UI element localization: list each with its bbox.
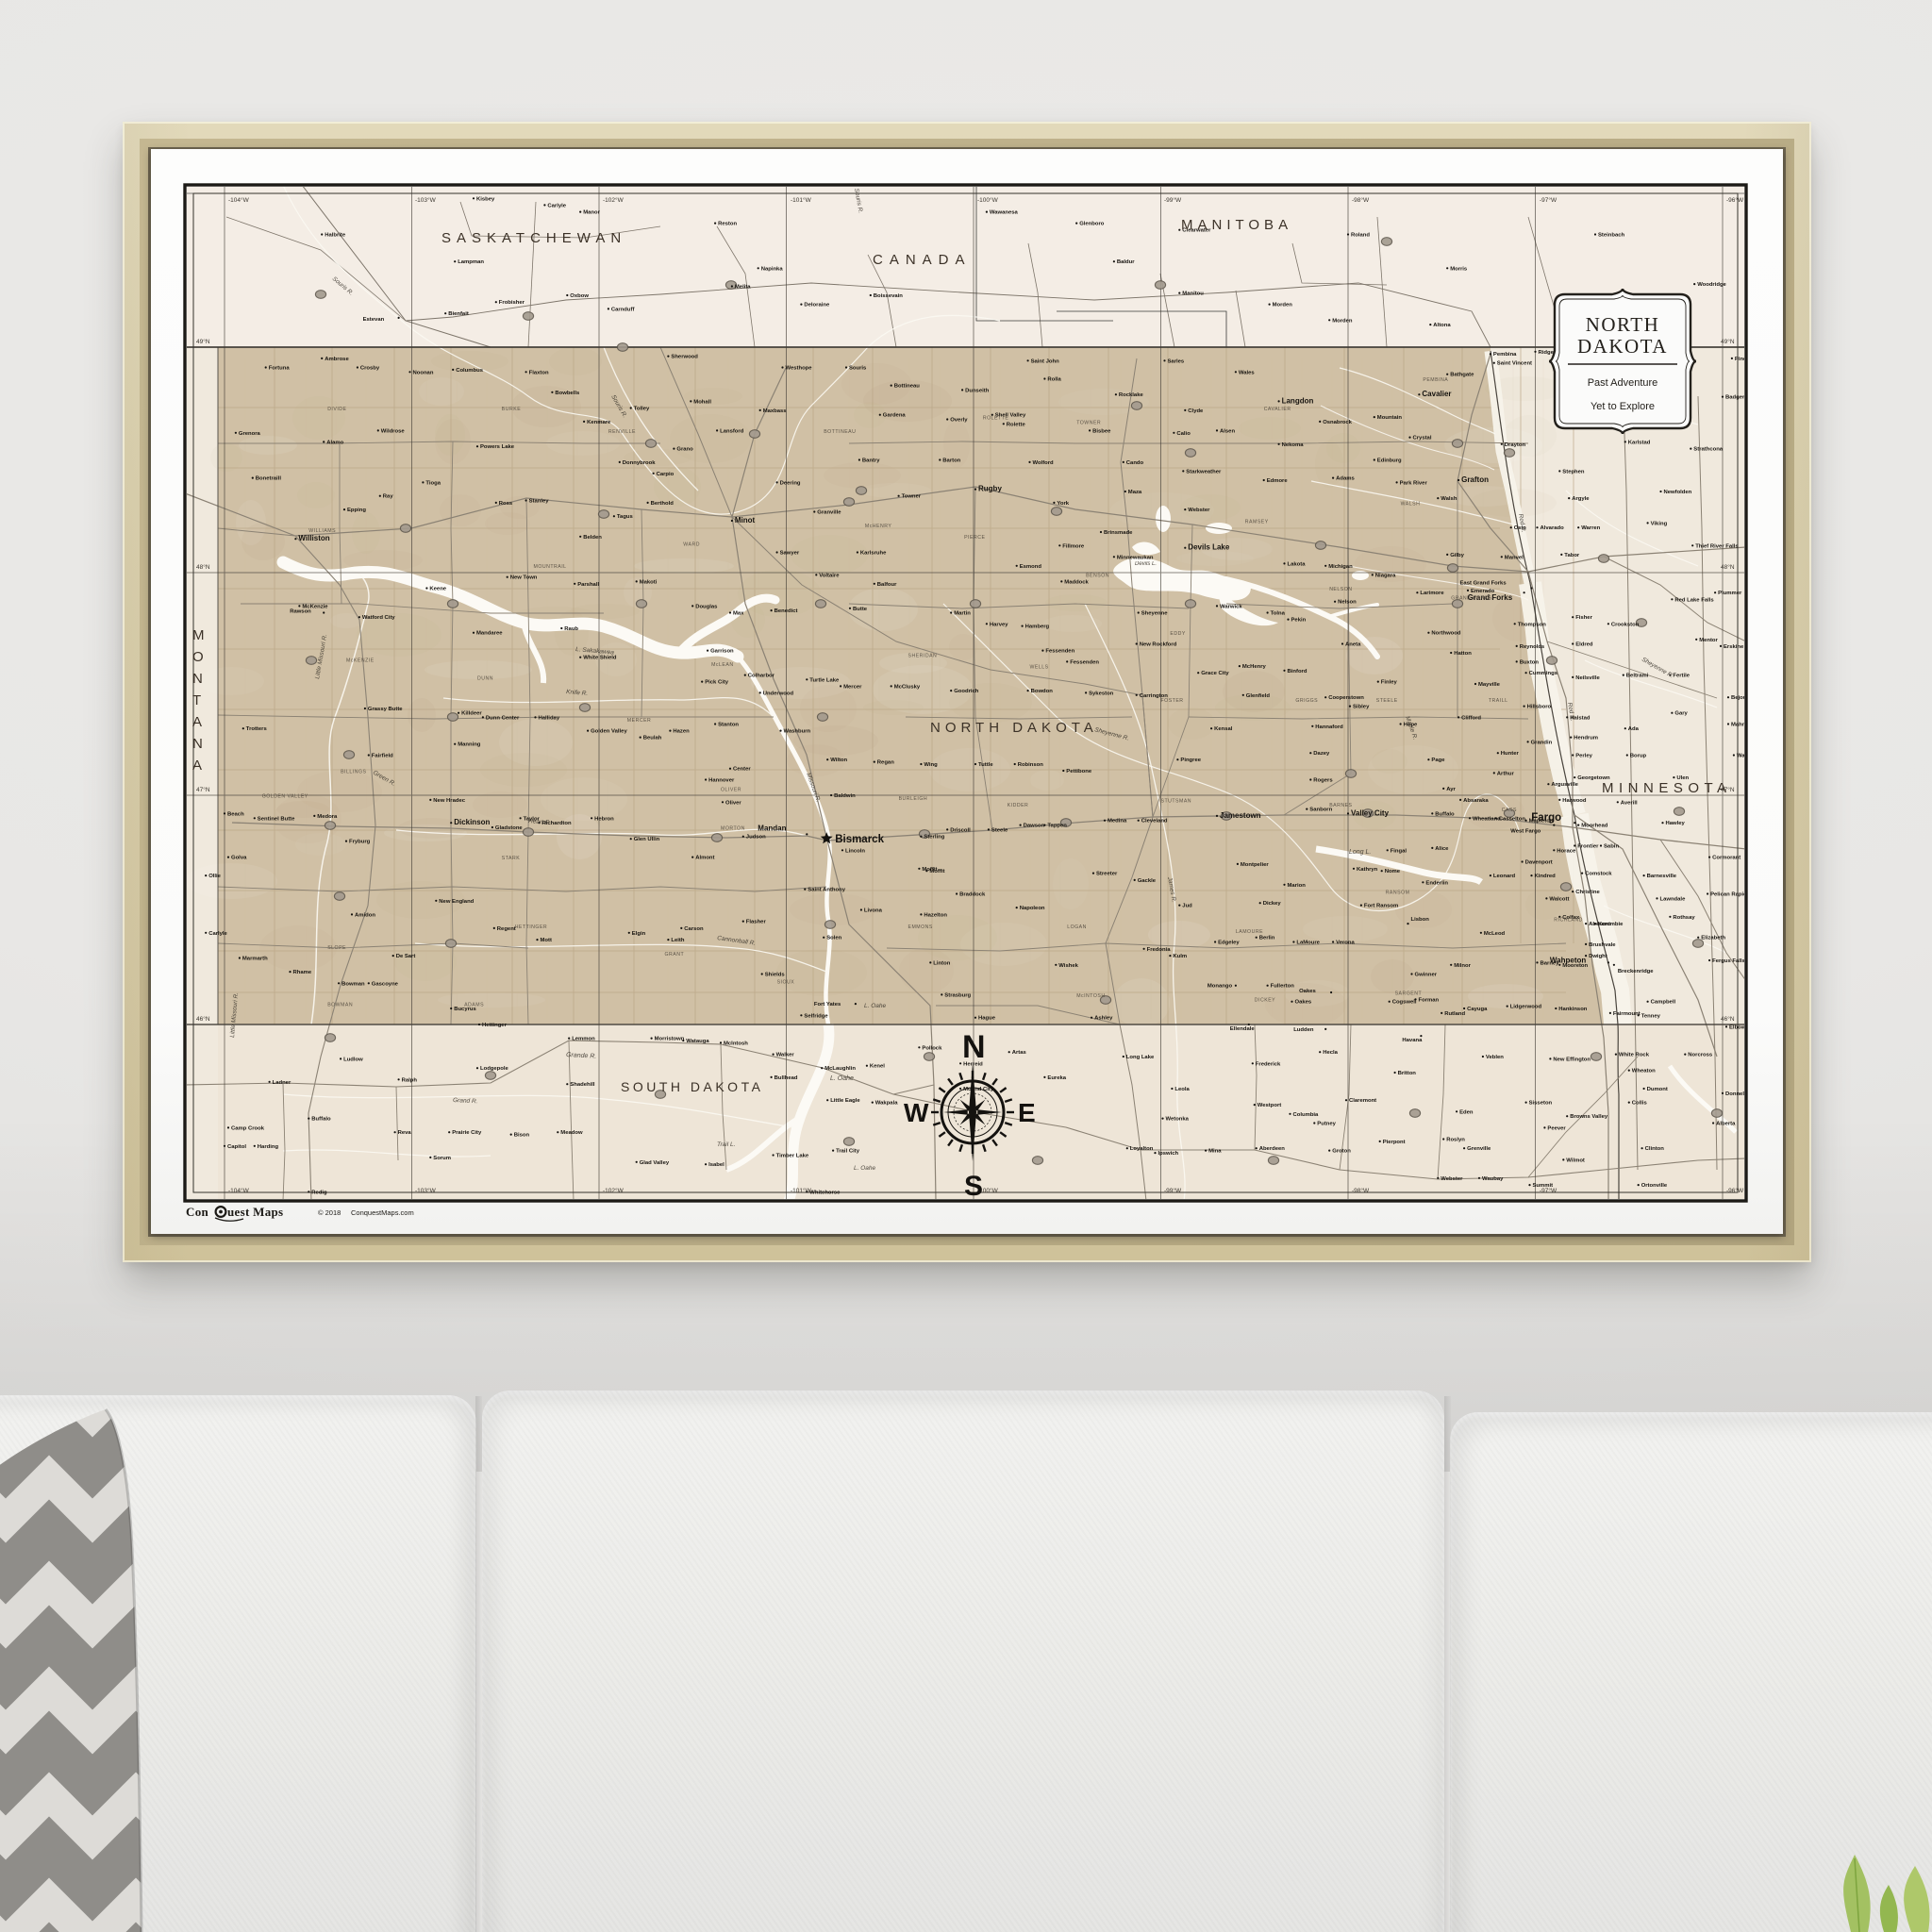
svg-text:Ada: Ada: [1628, 726, 1640, 732]
svg-text:Maxbass: Maxbass: [763, 408, 788, 414]
svg-text:Borup: Borup: [1630, 754, 1647, 759]
svg-text:Grand R.: Grand R.: [453, 1097, 478, 1105]
svg-text:Walker: Walker: [776, 1053, 795, 1058]
svg-text:Altona: Altona: [1433, 323, 1451, 328]
svg-text:Sheyenne: Sheyenne: [1141, 611, 1169, 617]
svg-text:Bowdon: Bowdon: [1031, 689, 1054, 694]
svg-text:Little Eagle: Little Eagle: [830, 1098, 860, 1104]
svg-text:Walsh: Walsh: [1441, 496, 1457, 502]
svg-text:Oxbow: Oxbow: [570, 293, 589, 299]
svg-text:Crookston: Crookston: [1611, 622, 1640, 627]
svg-text:Cooperstown: Cooperstown: [1328, 695, 1364, 701]
svg-text:WARD: WARD: [683, 541, 700, 547]
svg-text:Bejou: Bejou: [1731, 695, 1747, 701]
svg-text:Balfour: Balfour: [877, 582, 897, 588]
svg-text:McIntosh: McIntosh: [724, 1041, 748, 1046]
svg-text:Martin: Martin: [954, 611, 971, 617]
svg-text:Saint Vincent: Saint Vincent: [1497, 361, 1532, 367]
svg-text:Warwick: Warwick: [1220, 604, 1242, 609]
svg-text:Donnybrook: Donnybrook: [623, 460, 656, 466]
svg-text:LAMOURE: LAMOURE: [1236, 929, 1263, 935]
svg-text:Manor: Manor: [583, 210, 600, 216]
svg-text:Arthur: Arthur: [1497, 771, 1515, 776]
svg-text:Wing: Wing: [924, 762, 938, 768]
svg-text:Perley: Perley: [1575, 754, 1592, 759]
svg-text:Valley City: Valley City: [1351, 808, 1390, 817]
svg-text:Souris: Souris: [849, 366, 867, 372]
svg-text:Judson: Judson: [746, 835, 766, 841]
svg-text:Page: Page: [1431, 758, 1445, 763]
svg-text:Ipswich: Ipswich: [1158, 1151, 1179, 1157]
svg-text:BENSON: BENSON: [1086, 574, 1109, 579]
svg-text:Newfolden: Newfolden: [1664, 490, 1692, 495]
svg-text:Horace: Horace: [1557, 848, 1576, 854]
svg-text:Ralph: Ralph: [402, 1077, 418, 1083]
svg-text:Selfridge: Selfridge: [804, 1013, 828, 1019]
svg-text:ConquestMaps.com: ConquestMaps.com: [351, 1208, 414, 1217]
svg-text:Sawyer: Sawyer: [780, 551, 800, 557]
svg-text:M: M: [192, 627, 205, 643]
svg-text:Niagara: Niagara: [1375, 573, 1396, 578]
svg-text:McHENRY: McHENRY: [865, 524, 892, 529]
svg-text:Clifford: Clifford: [1461, 715, 1481, 721]
svg-text:Sentinel Butte: Sentinel Butte: [258, 816, 295, 822]
svg-text:Tolley: Tolley: [634, 407, 650, 412]
svg-text:Redig: Redig: [311, 1190, 327, 1195]
svg-text:RICHLAND: RICHLAND: [1554, 918, 1583, 924]
svg-text:-103°W: -103°W: [415, 1187, 437, 1194]
svg-text:Kulm: Kulm: [1173, 954, 1187, 959]
svg-text:Ollie: Ollie: [208, 874, 221, 879]
svg-text:Lincoln: Lincoln: [845, 848, 865, 854]
svg-text:Oakes: Oakes: [1295, 1000, 1312, 1006]
svg-text:Ortonville: Ortonville: [1641, 1183, 1668, 1189]
svg-text:RENVILLE: RENVILLE: [608, 429, 636, 435]
svg-text:New England: New England: [439, 899, 474, 905]
svg-text:Oakes: Oakes: [1299, 989, 1316, 994]
svg-text:Whitehorse: Whitehorse: [809, 1190, 841, 1195]
svg-text:Braddock: Braddock: [959, 892, 986, 898]
svg-text:Adams: Adams: [1336, 476, 1355, 482]
svg-text:Loyalton: Loyalton: [1130, 1146, 1154, 1152]
svg-text:Reva: Reva: [398, 1130, 412, 1136]
svg-text:McLEAN: McLEAN: [711, 662, 733, 668]
svg-text:Tagus: Tagus: [617, 514, 634, 520]
svg-text:Marion: Marion: [1288, 883, 1307, 889]
svg-text:EDDY: EDDY: [1170, 631, 1185, 637]
svg-text:Parshall: Parshall: [577, 582, 599, 588]
svg-text:Lodgepole: Lodgepole: [480, 1066, 509, 1072]
svg-text:Hankinson: Hankinson: [1558, 1007, 1588, 1012]
svg-text:Wilmot: Wilmot: [1566, 1158, 1585, 1163]
svg-text:Rhame: Rhame: [293, 970, 312, 975]
svg-text:L. Oahe: L. Oahe: [830, 1075, 854, 1082]
svg-text:O: O: [192, 649, 204, 665]
svg-text:Harvey: Harvey: [990, 622, 1008, 627]
svg-text:Strathcona: Strathcona: [1693, 447, 1723, 453]
svg-text:Bisbee: Bisbee: [1092, 428, 1111, 434]
svg-text:Livona: Livona: [864, 908, 883, 914]
svg-text:Center: Center: [733, 767, 751, 773]
svg-text:-99°W: -99°W: [1164, 196, 1182, 204]
svg-text:Hamberg: Hamberg: [1025, 625, 1050, 630]
svg-text:Tappen: Tappen: [1047, 824, 1067, 829]
svg-text:Wheaton: Wheaton: [1632, 1069, 1656, 1074]
svg-text:Wilton: Wilton: [830, 758, 847, 763]
svg-text:46°N: 46°N: [196, 1015, 210, 1023]
svg-text:RANSOM: RANSOM: [1386, 891, 1410, 896]
svg-text:Lansford: Lansford: [720, 428, 744, 434]
svg-text:BOTTINEAU: BOTTINEAU: [824, 429, 856, 435]
svg-text:Strasburg: Strasburg: [944, 992, 971, 998]
svg-text:-102°W: -102°W: [603, 1187, 625, 1194]
svg-text:Eden: Eden: [1459, 1109, 1474, 1115]
svg-text:N: N: [962, 1029, 986, 1065]
svg-text:Christine: Christine: [1575, 890, 1600, 895]
svg-text:McKENZIE: McKENZIE: [346, 658, 375, 663]
svg-text:Wheatland: Wheatland: [1473, 816, 1501, 822]
svg-text:TRAILL: TRAILL: [1489, 698, 1508, 704]
svg-text:Halbrite: Halbrite: [325, 233, 346, 239]
svg-text:Steele: Steele: [991, 827, 1008, 833]
svg-text:Lemmon: Lemmon: [572, 1037, 595, 1042]
svg-text:Norcross: Norcross: [1688, 1053, 1713, 1058]
svg-text:Butte: Butte: [853, 607, 868, 612]
svg-text:© 2018: © 2018: [318, 1208, 341, 1217]
svg-text:Carpio: Carpio: [657, 472, 675, 477]
svg-text:N: N: [192, 671, 203, 687]
svg-text:Starkweather: Starkweather: [1186, 469, 1222, 475]
svg-text:Stanley: Stanley: [529, 499, 550, 505]
svg-text:Campbell: Campbell: [1651, 1000, 1676, 1006]
svg-text:Kindred: Kindred: [1535, 874, 1557, 879]
svg-text:Montpelier: Montpelier: [1241, 862, 1269, 868]
svg-text:New Rockford: New Rockford: [1140, 642, 1177, 648]
svg-text:Wales: Wales: [1239, 370, 1256, 375]
svg-text:HETTINGER: HETTINGER: [515, 924, 547, 930]
svg-text:Hendrum: Hendrum: [1574, 736, 1598, 741]
svg-text:Kenmare: Kenmare: [587, 420, 611, 425]
svg-text:Frederick: Frederick: [1256, 1061, 1281, 1067]
svg-text:Trail City: Trail City: [836, 1149, 860, 1155]
svg-text:Bantry: Bantry: [862, 458, 880, 464]
svg-text:Tabor: Tabor: [1564, 553, 1580, 558]
svg-text:NORTH DAKOTA: NORTH DAKOTA: [930, 720, 1098, 736]
svg-text:48°N: 48°N: [196, 563, 210, 571]
svg-text:Sykeston: Sykeston: [1089, 691, 1114, 696]
svg-text:McKenzie: McKenzie: [302, 604, 328, 609]
svg-text:Flaxton: Flaxton: [529, 370, 549, 375]
svg-text:Camp Crook: Camp Crook: [231, 1125, 265, 1131]
svg-text:Grassy Butte: Grassy Butte: [368, 707, 403, 712]
svg-text:MINNESOTA: MINNESOTA: [1602, 780, 1732, 796]
svg-text:Napoleon: Napoleon: [1020, 906, 1045, 911]
svg-text:Alberta: Alberta: [1716, 1122, 1736, 1127]
svg-text:Averill: Averill: [1621, 800, 1638, 806]
svg-text:Erskine: Erskine: [1724, 644, 1744, 650]
svg-text:Edmore: Edmore: [1267, 478, 1289, 484]
svg-text:DAKOTA: DAKOTA: [1577, 335, 1668, 358]
svg-text:Raub: Raub: [564, 626, 578, 632]
svg-text:Fortuna: Fortuna: [269, 366, 291, 372]
svg-text:Mercer: Mercer: [843, 684, 862, 690]
svg-text:Calio: Calio: [1176, 431, 1191, 437]
svg-text:-104°W: -104°W: [228, 196, 250, 204]
svg-text:WALSH: WALSH: [1401, 501, 1421, 507]
svg-text:Edinburg: Edinburg: [1377, 458, 1402, 464]
svg-text:Manitou: Manitou: [1182, 291, 1204, 297]
svg-text:EMMONS: EMMONS: [908, 924, 933, 930]
svg-text:Red Lake Falls: Red Lake Falls: [1674, 597, 1714, 603]
svg-text:KIDDER: KIDDER: [1008, 803, 1029, 808]
svg-text:Hunter: Hunter: [1501, 751, 1520, 757]
svg-text:Brinsmade: Brinsmade: [1104, 530, 1133, 536]
svg-text:Wishek: Wishek: [1058, 963, 1078, 969]
svg-text:Gilby: Gilby: [1450, 553, 1464, 558]
svg-text:Solen: Solen: [826, 936, 841, 941]
svg-text:Colharbor: Colharbor: [748, 674, 775, 679]
svg-text:Deloraine: Deloraine: [804, 303, 830, 308]
svg-text:Park River: Park River: [1400, 480, 1428, 486]
svg-text:Glad Valley: Glad Valley: [640, 1160, 670, 1166]
svg-text:E: E: [1018, 1098, 1036, 1127]
svg-text:Hawley: Hawley: [1666, 821, 1686, 826]
svg-text:White Shield: White Shield: [583, 656, 617, 661]
svg-text:CASS: CASS: [1502, 808, 1517, 813]
svg-text:46°N: 46°N: [1721, 1015, 1735, 1023]
svg-text:RAMSEY: RAMSEY: [1245, 519, 1269, 525]
svg-text:Dumont: Dumont: [1647, 1087, 1668, 1092]
svg-text:SASKATCHEWAN: SASKATCHEWAN: [441, 230, 626, 246]
svg-text:Douglas: Douglas: [695, 604, 718, 609]
svg-text:WELLS: WELLS: [1030, 665, 1049, 671]
svg-text:CANADA: CANADA: [873, 252, 972, 268]
svg-text:McLeod: McLeod: [1484, 931, 1506, 937]
svg-text:East Grand Forks: East Grand Forks: [1460, 581, 1507, 587]
svg-text:Harwood: Harwood: [1562, 798, 1587, 804]
svg-text:Eldred: Eldred: [1575, 642, 1593, 648]
svg-text:SOUTH DAKOTA: SOUTH DAKOTA: [621, 1079, 763, 1094]
svg-text:Golden Valley: Golden Valley: [591, 729, 627, 735]
svg-text:L. Oahe: L. Oahe: [864, 1003, 887, 1009]
svg-text:Cleveland: Cleveland: [1141, 819, 1168, 824]
svg-text:Overly: Overly: [950, 418, 968, 424]
svg-text:Mohall: Mohall: [693, 399, 711, 405]
svg-text:Buffalo: Buffalo: [1435, 811, 1455, 817]
svg-text:Absaraka: Absaraka: [1463, 798, 1489, 804]
svg-text:Wolford: Wolford: [1033, 460, 1055, 466]
svg-text:Woodridge: Woodridge: [1697, 282, 1726, 288]
svg-text:Mina: Mina: [1208, 1149, 1222, 1155]
svg-text:Bottineau: Bottineau: [894, 384, 921, 390]
svg-text:-101°W: -101°W: [791, 196, 812, 204]
svg-text:Lawndale: Lawndale: [1660, 896, 1687, 902]
svg-text:Steinbach: Steinbach: [1598, 233, 1625, 239]
svg-text:Fergus Falls: Fergus Falls: [1712, 958, 1745, 964]
svg-text:-101°W: -101°W: [791, 1187, 812, 1194]
svg-text:Drayton: Drayton: [1505, 442, 1526, 448]
svg-text:Webster: Webster: [1441, 1176, 1463, 1182]
svg-text:Elizabeth: Elizabeth: [1701, 936, 1725, 941]
svg-text:Grandin: Grandin: [1531, 740, 1553, 745]
svg-text:Devils L.: Devils L.: [1135, 561, 1157, 567]
svg-text:Leola: Leola: [1174, 1087, 1190, 1092]
svg-text:Long Lake: Long Lake: [1126, 1055, 1155, 1060]
svg-text:Medina: Medina: [1108, 819, 1127, 824]
svg-text:Marmarth: Marmarth: [242, 957, 268, 962]
svg-text:Grace City: Grace City: [1201, 671, 1229, 676]
svg-text:Jud: Jud: [1182, 904, 1192, 909]
svg-text:McHenry: McHenry: [1242, 664, 1267, 670]
svg-text:Regan: Regan: [877, 760, 894, 766]
svg-text:Moffit: Moffit: [929, 869, 944, 874]
svg-text:Barnesville: Barnesville: [1647, 874, 1677, 879]
svg-text:New Town: New Town: [510, 575, 538, 581]
svg-text:Cayuga: Cayuga: [1467, 1007, 1488, 1012]
svg-text:Ludden: Ludden: [1293, 1027, 1314, 1033]
svg-text:Grenora: Grenora: [239, 431, 261, 437]
svg-text:N: N: [192, 736, 203, 752]
svg-text:Glenfield: Glenfield: [1246, 693, 1271, 699]
svg-text:Pollock: Pollock: [922, 1045, 942, 1051]
svg-text:Dunseith: Dunseith: [965, 388, 990, 393]
svg-text:Pinecreek: Pinecreek: [1735, 357, 1762, 362]
svg-text:Dickinson: Dickinson: [454, 818, 490, 826]
svg-text:Northwood: Northwood: [1431, 631, 1460, 637]
svg-text:Wetonka: Wetonka: [1166, 1117, 1190, 1123]
svg-text:Fort Ransom: Fort Ransom: [1364, 904, 1398, 909]
svg-text:Fingal: Fingal: [1391, 848, 1407, 854]
svg-text:Bathgate: Bathgate: [1450, 373, 1474, 378]
svg-text:DICKEY: DICKEY: [1255, 998, 1275, 1004]
svg-text:L. Oahe: L. Oahe: [854, 1165, 876, 1172]
svg-text:Oliver: Oliver: [725, 800, 741, 806]
svg-text:Columbus: Columbus: [456, 368, 484, 374]
svg-text:Trail L.: Trail L.: [717, 1141, 736, 1148]
svg-text:Jamestown: Jamestown: [1220, 811, 1261, 820]
svg-text:Gackle: Gackle: [1138, 878, 1157, 884]
svg-text:WILLIAMS: WILLIAMS: [308, 528, 336, 534]
svg-text:ROLETTE: ROLETTE: [983, 416, 1008, 422]
svg-text:-103°W: -103°W: [415, 196, 437, 204]
svg-text:NORTH: NORTH: [1586, 313, 1660, 336]
svg-text:Mandan: Mandan: [758, 824, 786, 832]
svg-text:Dunn Center: Dunn Center: [486, 715, 520, 721]
svg-text:T: T: [192, 692, 201, 708]
svg-text:SLOPE: SLOPE: [327, 945, 346, 951]
svg-text:Linton: Linton: [933, 960, 950, 966]
svg-text:Bullhead: Bullhead: [774, 1075, 798, 1081]
svg-text:Flasher: Flasher: [746, 920, 767, 925]
svg-text:Fort Yates: Fort Yates: [814, 1002, 841, 1008]
svg-text:Clyde: Clyde: [1188, 408, 1204, 414]
svg-text:Nekoma: Nekoma: [1282, 442, 1305, 448]
svg-text:Verona: Verona: [1336, 941, 1355, 946]
svg-text:Halliday: Halliday: [539, 715, 560, 721]
svg-text:Morristown: Morristown: [655, 1037, 685, 1042]
svg-text:Shields: Shields: [765, 973, 786, 978]
svg-text:Voltaire: Voltaire: [819, 573, 840, 578]
svg-text:Fessenden: Fessenden: [1070, 659, 1099, 665]
svg-text:Alamo: Alamo: [326, 440, 343, 445]
svg-text:Killdeer: Killdeer: [461, 711, 482, 717]
svg-text:Larimore: Larimore: [1420, 591, 1444, 596]
svg-text:Dawson: Dawson: [1024, 824, 1045, 829]
svg-text:Kenel: Kenel: [870, 1064, 885, 1070]
svg-text:S: S: [964, 1171, 983, 1202]
svg-text:Past Adventure: Past Adventure: [1588, 377, 1658, 389]
svg-text:De Sart: De Sart: [396, 954, 416, 959]
svg-text:A: A: [192, 714, 202, 730]
svg-text:Leith: Leith: [671, 938, 684, 943]
svg-text:Capitol: Capitol: [227, 1144, 246, 1150]
svg-text:Mooreton: Mooreton: [1562, 963, 1588, 969]
svg-text:Minnewaukan: Minnewaukan: [1117, 555, 1154, 560]
svg-text:Argusville: Argusville: [1551, 782, 1578, 788]
svg-text:Garrison: Garrison: [710, 649, 734, 655]
svg-text:-102°W: -102°W: [603, 196, 625, 204]
svg-text:Veblen: Veblen: [1486, 1055, 1504, 1060]
svg-text:Napinka: Napinka: [761, 266, 784, 272]
svg-text:Mapleton: Mapleton: [1529, 819, 1554, 824]
svg-text:Amidon: Amidon: [355, 912, 375, 918]
svg-text:Trotters: Trotters: [246, 726, 268, 732]
svg-text:Cavalier: Cavalier: [1422, 390, 1451, 398]
svg-text:Wawanesa: Wawanesa: [990, 210, 1019, 216]
svg-text:Noonan: Noonan: [413, 370, 434, 375]
svg-text:Robinson: Robinson: [1018, 762, 1044, 768]
svg-text:Golva: Golva: [231, 856, 247, 861]
svg-text:SHERIDAN: SHERIDAN: [908, 654, 938, 659]
svg-text:Hatton: Hatton: [1454, 651, 1472, 657]
svg-text:Fessenden: Fessenden: [1045, 649, 1074, 655]
svg-text:Pettibone: Pettibone: [1066, 769, 1092, 774]
svg-text:Maddock: Maddock: [1064, 579, 1089, 585]
svg-text:Finley: Finley: [1381, 680, 1398, 686]
svg-text:Claremont: Claremont: [1349, 1098, 1376, 1104]
svg-text:Grafton: Grafton: [1461, 475, 1489, 484]
svg-text:Bowman: Bowman: [341, 981, 365, 987]
svg-text:MANITOBA: MANITOBA: [1181, 217, 1292, 233]
svg-text:Fryburg: Fryburg: [349, 840, 371, 845]
svg-text:Pick City: Pick City: [705, 680, 729, 686]
svg-text:Roland: Roland: [1351, 233, 1370, 239]
svg-text:Edgeley: Edgeley: [1218, 941, 1240, 946]
svg-text:Glenboro: Glenboro: [1079, 222, 1105, 227]
svg-text:Moorhead: Moorhead: [1581, 824, 1608, 829]
svg-text:Hague: Hague: [978, 1016, 996, 1022]
svg-text:Binford: Binford: [1288, 669, 1307, 675]
svg-text:Webster: Webster: [1188, 508, 1210, 513]
svg-text:-98°W: -98°W: [1352, 1187, 1370, 1194]
svg-text:Davenport: Davenport: [1525, 860, 1553, 866]
svg-text:Gladstone: Gladstone: [495, 825, 524, 831]
svg-text:Fairfield: Fairfield: [372, 754, 393, 759]
svg-text:Melita: Melita: [735, 285, 751, 291]
svg-text:Reynolds: Reynolds: [1520, 644, 1545, 650]
svg-text:White Rock: White Rock: [1619, 1053, 1650, 1058]
svg-text:Nelson: Nelson: [1338, 600, 1357, 606]
svg-text:BURKE: BURKE: [502, 407, 521, 412]
svg-text:-99°W: -99°W: [1164, 1187, 1182, 1194]
svg-text:Beulah: Beulah: [643, 736, 662, 741]
svg-text:Mentor: Mentor: [1699, 638, 1718, 643]
svg-text:Abercrombie: Abercrombie: [1589, 922, 1624, 927]
svg-text:Peever: Peever: [1547, 1125, 1566, 1131]
svg-text:Forman: Forman: [1419, 997, 1440, 1003]
svg-text:Dickey: Dickey: [1263, 901, 1282, 907]
svg-text:Eureka: Eureka: [1047, 1075, 1066, 1081]
